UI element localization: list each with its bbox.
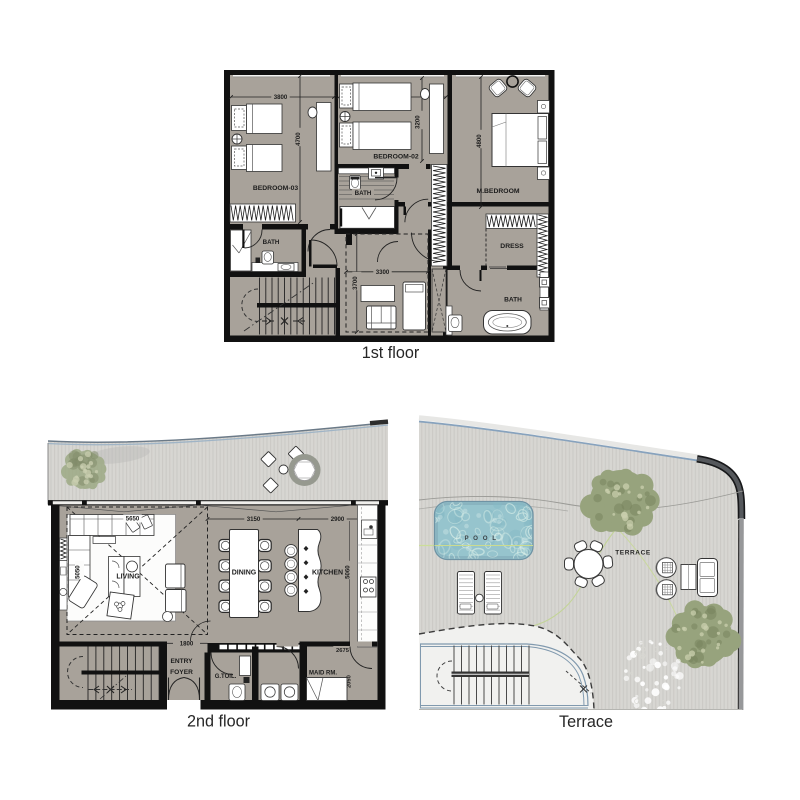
svg-text:P O O L: P O O L <box>464 535 497 542</box>
svg-text:M.BEDROOM: M.BEDROOM <box>476 188 519 195</box>
svg-text:BEDROOM-02: BEDROOM-02 <box>373 154 419 161</box>
svg-text:3800: 3800 <box>274 94 288 101</box>
svg-text:DINING: DINING <box>232 570 257 577</box>
svg-text:FOYER: FOYER <box>170 669 193 676</box>
svg-text:Terrace: Terrace <box>559 713 613 731</box>
svg-text:BATH: BATH <box>263 239 280 246</box>
svg-text:TERRACE: TERRACE <box>615 550 651 557</box>
svg-text:3700: 3700 <box>352 276 359 290</box>
svg-text:BATH: BATH <box>504 297 522 304</box>
svg-text:5050: 5050 <box>75 565 82 579</box>
svg-text:2900: 2900 <box>331 516 345 523</box>
svg-text:KITCHEN: KITCHEN <box>312 570 343 577</box>
svg-text:5650: 5650 <box>126 516 140 523</box>
svg-text:4800: 4800 <box>476 134 483 148</box>
svg-text:1st floor: 1st floor <box>362 344 420 362</box>
svg-text:5060: 5060 <box>345 565 352 579</box>
svg-text:MAID RM.: MAID RM. <box>309 671 337 677</box>
svg-text:3200: 3200 <box>415 115 422 129</box>
svg-text:DRESS: DRESS <box>500 243 524 250</box>
svg-text:2675: 2675 <box>336 648 350 654</box>
svg-text:2nd floor: 2nd floor <box>187 713 251 731</box>
svg-text:3300: 3300 <box>376 269 390 276</box>
svg-text:3150: 3150 <box>247 516 261 523</box>
svg-text:LIVING: LIVING <box>116 574 140 581</box>
svg-text:G.TOIL.: G.TOIL. <box>215 674 237 680</box>
svg-text:ENTRY: ENTRY <box>170 658 193 665</box>
svg-text:4700: 4700 <box>295 132 302 146</box>
svg-text:BEDROOM-03: BEDROOM-03 <box>253 185 299 192</box>
svg-text:BATH: BATH <box>355 190 372 197</box>
svg-text:1800: 1800 <box>180 640 194 647</box>
